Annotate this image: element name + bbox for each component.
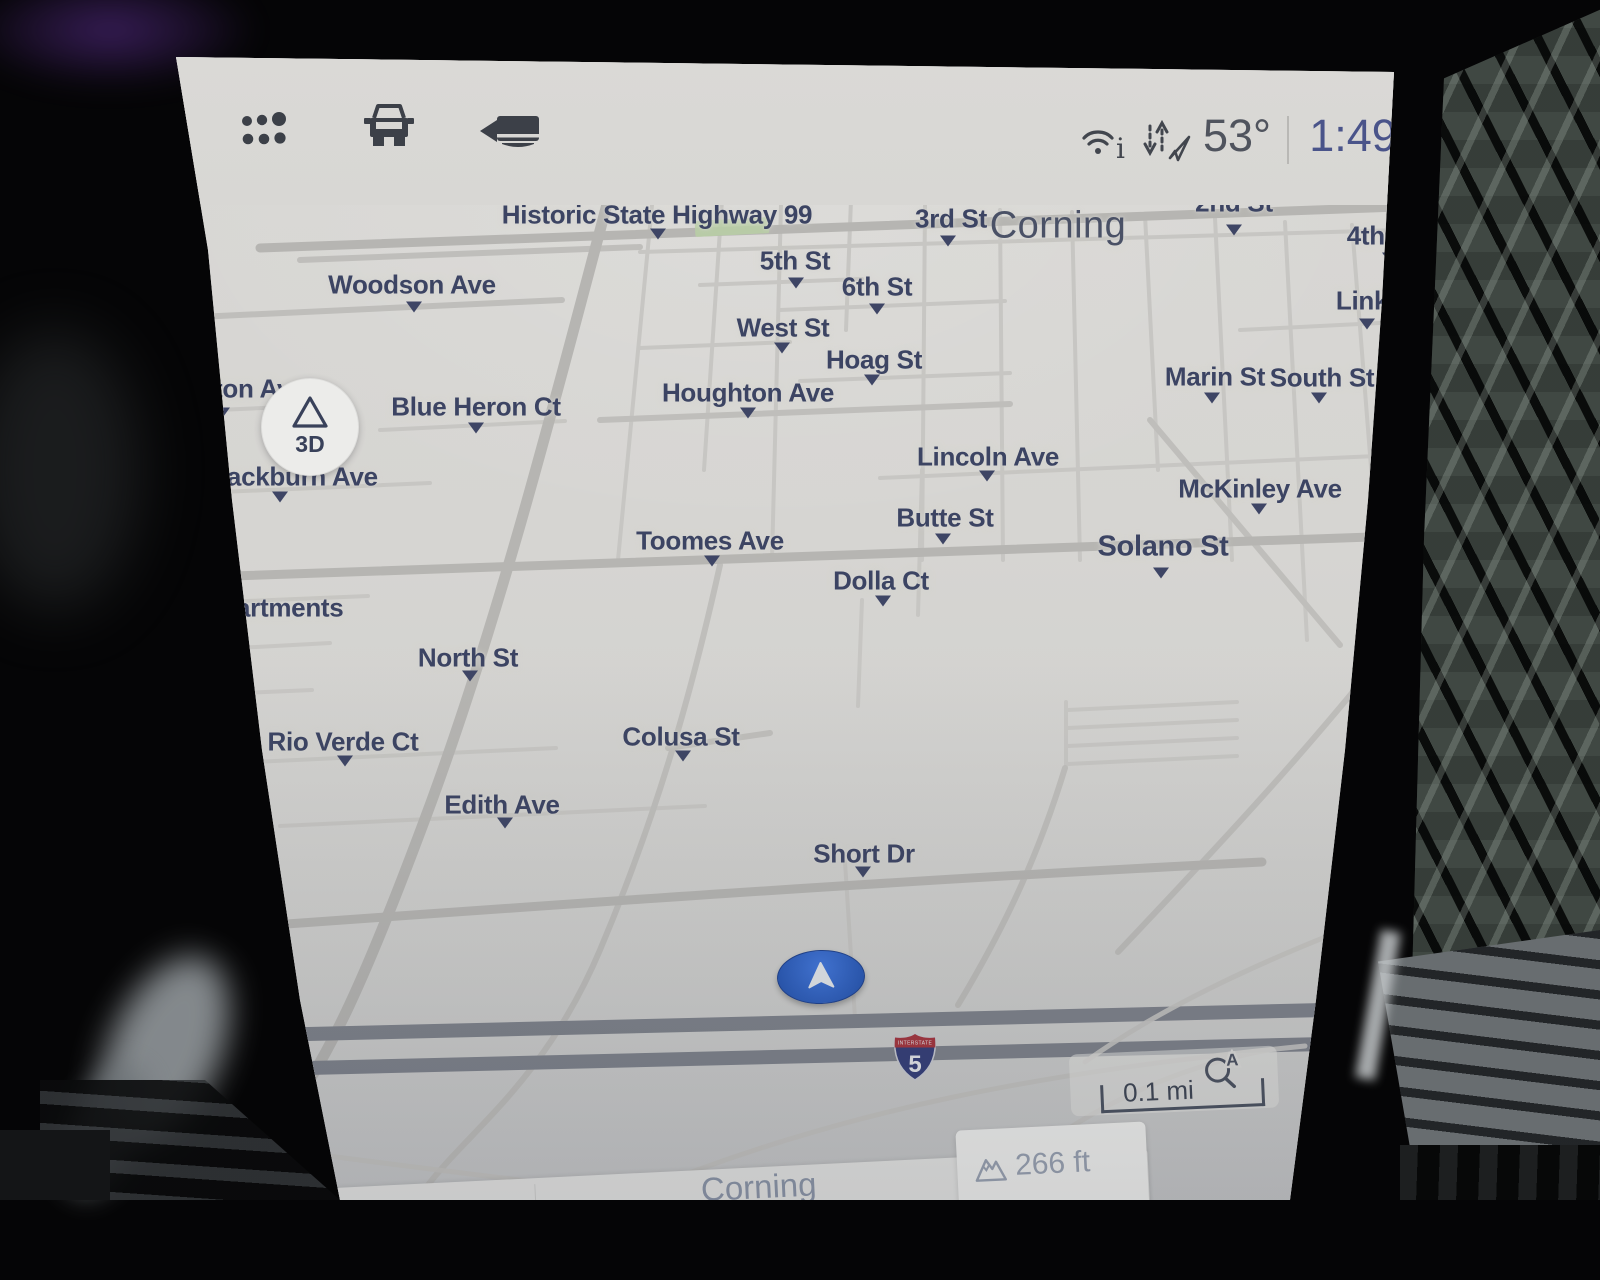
dashboard-left-corner-trim bbox=[0, 1130, 110, 1200]
dashboard-left-vent bbox=[40, 1080, 340, 1200]
bottom-menu-icon-cut bbox=[359, 1211, 386, 1224]
dashboard-left-highlight bbox=[74, 936, 256, 1163]
photo-vignette-corners bbox=[0, 0, 1600, 1200]
dashboard-right-grille bbox=[1400, 0, 1600, 980]
dashboard-right-lower-trim bbox=[1400, 1145, 1600, 1200]
dashboard-left-highlight-2 bbox=[45, 1052, 166, 1208]
dashboard-right-vent bbox=[1378, 930, 1600, 1155]
dashboard-left-trim bbox=[0, 330, 140, 610]
bottom-menu-icon-cut bbox=[439, 1206, 458, 1221]
dashboard-right-highlight bbox=[1355, 929, 1401, 1080]
infotainment-screen: Historic State Highway 993rd StCorning2n… bbox=[0, 0, 1600, 1200]
